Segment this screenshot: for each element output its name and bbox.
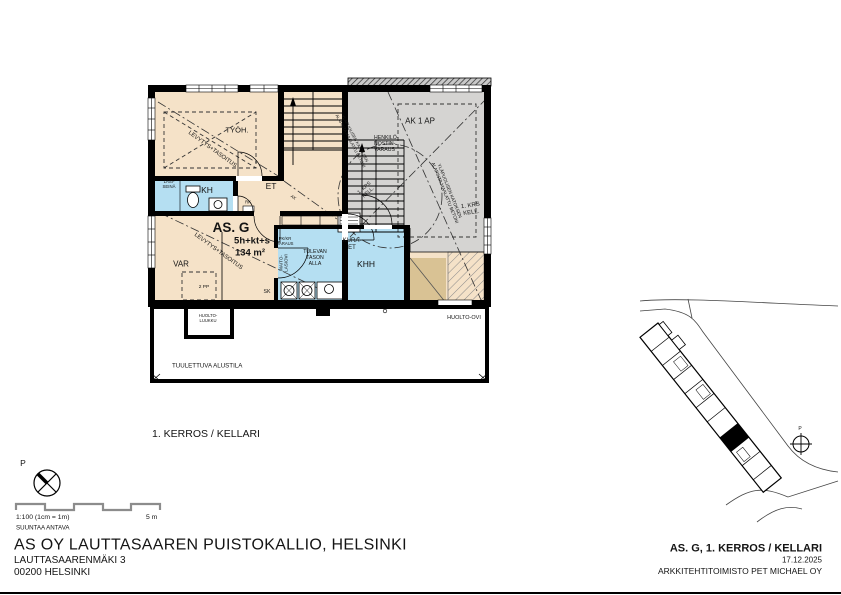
note-service-hatch: HUOLTO-LUUKKU — [199, 314, 217, 324]
scale-disclaimer: SUUNTAA ANTAVA — [16, 524, 70, 531]
room-label-bathroom: KH — [201, 185, 213, 195]
north-label: P — [20, 458, 26, 468]
drawing-date: 17.12.2025 — [782, 555, 822, 564]
project-address-line1: LAUTTASAARENMÄKI 3 — [14, 555, 126, 567]
scale-end-text: 5 m — [146, 514, 157, 522]
architect-name: ARKKITEHTITOIMISTO PET MICHAEL OY — [658, 566, 822, 576]
site-map — [640, 299, 838, 522]
toilet-tank — [186, 186, 200, 192]
apartment-rooms-spec: 5h+kt+s — [234, 235, 270, 246]
scale-bar — [16, 504, 160, 510]
level-label-carport: 1. KRSKELL. — [461, 202, 482, 219]
site-building-strip — [640, 318, 788, 492]
room-label-hall: ET — [266, 181, 277, 191]
toilet-bowl — [188, 193, 199, 208]
apartment-area: 134 m² — [235, 247, 265, 258]
note-bicycles: 2 PP — [199, 285, 209, 291]
sink-basin — [214, 201, 222, 209]
note-glass-wall: LASI-SEINÄ — [163, 179, 176, 189]
room-label-mudroom: KURA-ET — [343, 238, 362, 252]
note-under-future-level: TULEVANTASONALLA — [303, 249, 327, 267]
scale-text: 1:100 (1cm = 1m) — [16, 514, 69, 522]
floor-plan-drawing — [0, 0, 841, 595]
north-compass — [34, 470, 60, 496]
note-parking-spot: AK 1 AP — [405, 116, 435, 125]
note-washer-reservation: PK/KRVARAUS — [277, 237, 294, 247]
apartment-id: AS. G — [213, 220, 250, 236]
floor-title: 1. KERROS / KELLARI — [152, 428, 260, 440]
note-glass-door: MAITO-LASIOVI — [279, 254, 290, 272]
drawing-title: AS. G, 1. KERROS / KELLARI — [670, 543, 822, 556]
sheet-border-bottom — [0, 592, 841, 594]
note-electric-panel: RK — [245, 201, 251, 206]
note-lift-reservation: HENKILÖ-NOSTIN-VARAUS — [374, 135, 399, 153]
drawing-sheet: TYÖH. LEVYTYS+TASOITUS LEVYTYS+TASOITUS … — [0, 0, 841, 595]
note-ventilated-subfloor: TUULETTUVA ALUSTILA — [172, 362, 242, 369]
room-label-storage: VAR — [173, 259, 189, 268]
room-label-workroom: TYÖH. — [226, 127, 249, 136]
room-label-cleaning-closet: SK — [264, 289, 271, 295]
room-label-utility: KHH — [357, 259, 375, 269]
project-address-line2: 00200 HELSINKI — [14, 567, 90, 579]
project-title: AS OY LAUTTASAAREN PUISTOKALLIO, HELSINK… — [14, 537, 407, 556]
sitemap-north-label: P — [798, 427, 801, 433]
note-service-door: HUOLTO-OVI — [447, 315, 481, 321]
